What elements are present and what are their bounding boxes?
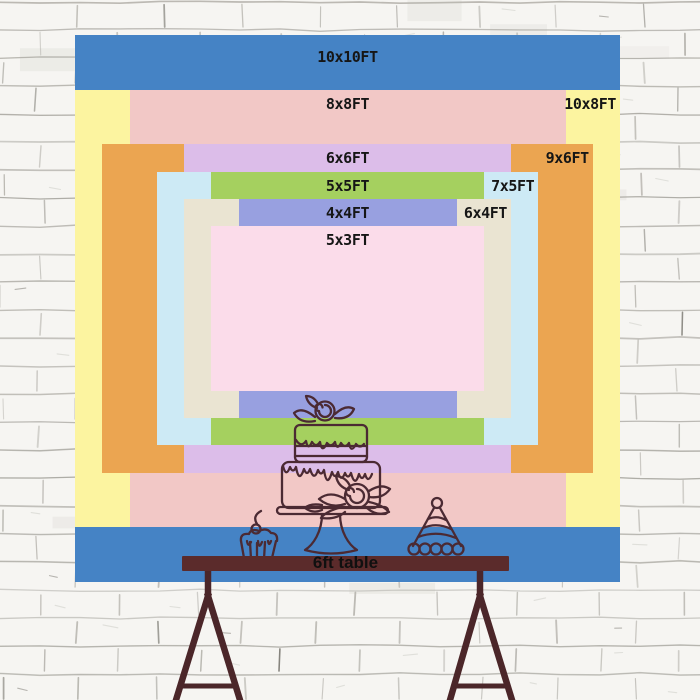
table-label: 6ft table xyxy=(182,554,509,573)
table-and-decor xyxy=(0,0,700,700)
birthday-cake-icon xyxy=(277,396,390,554)
party-hat-icon xyxy=(409,498,464,555)
cake-stand xyxy=(277,507,388,554)
easel-stand-legs xyxy=(176,560,512,700)
